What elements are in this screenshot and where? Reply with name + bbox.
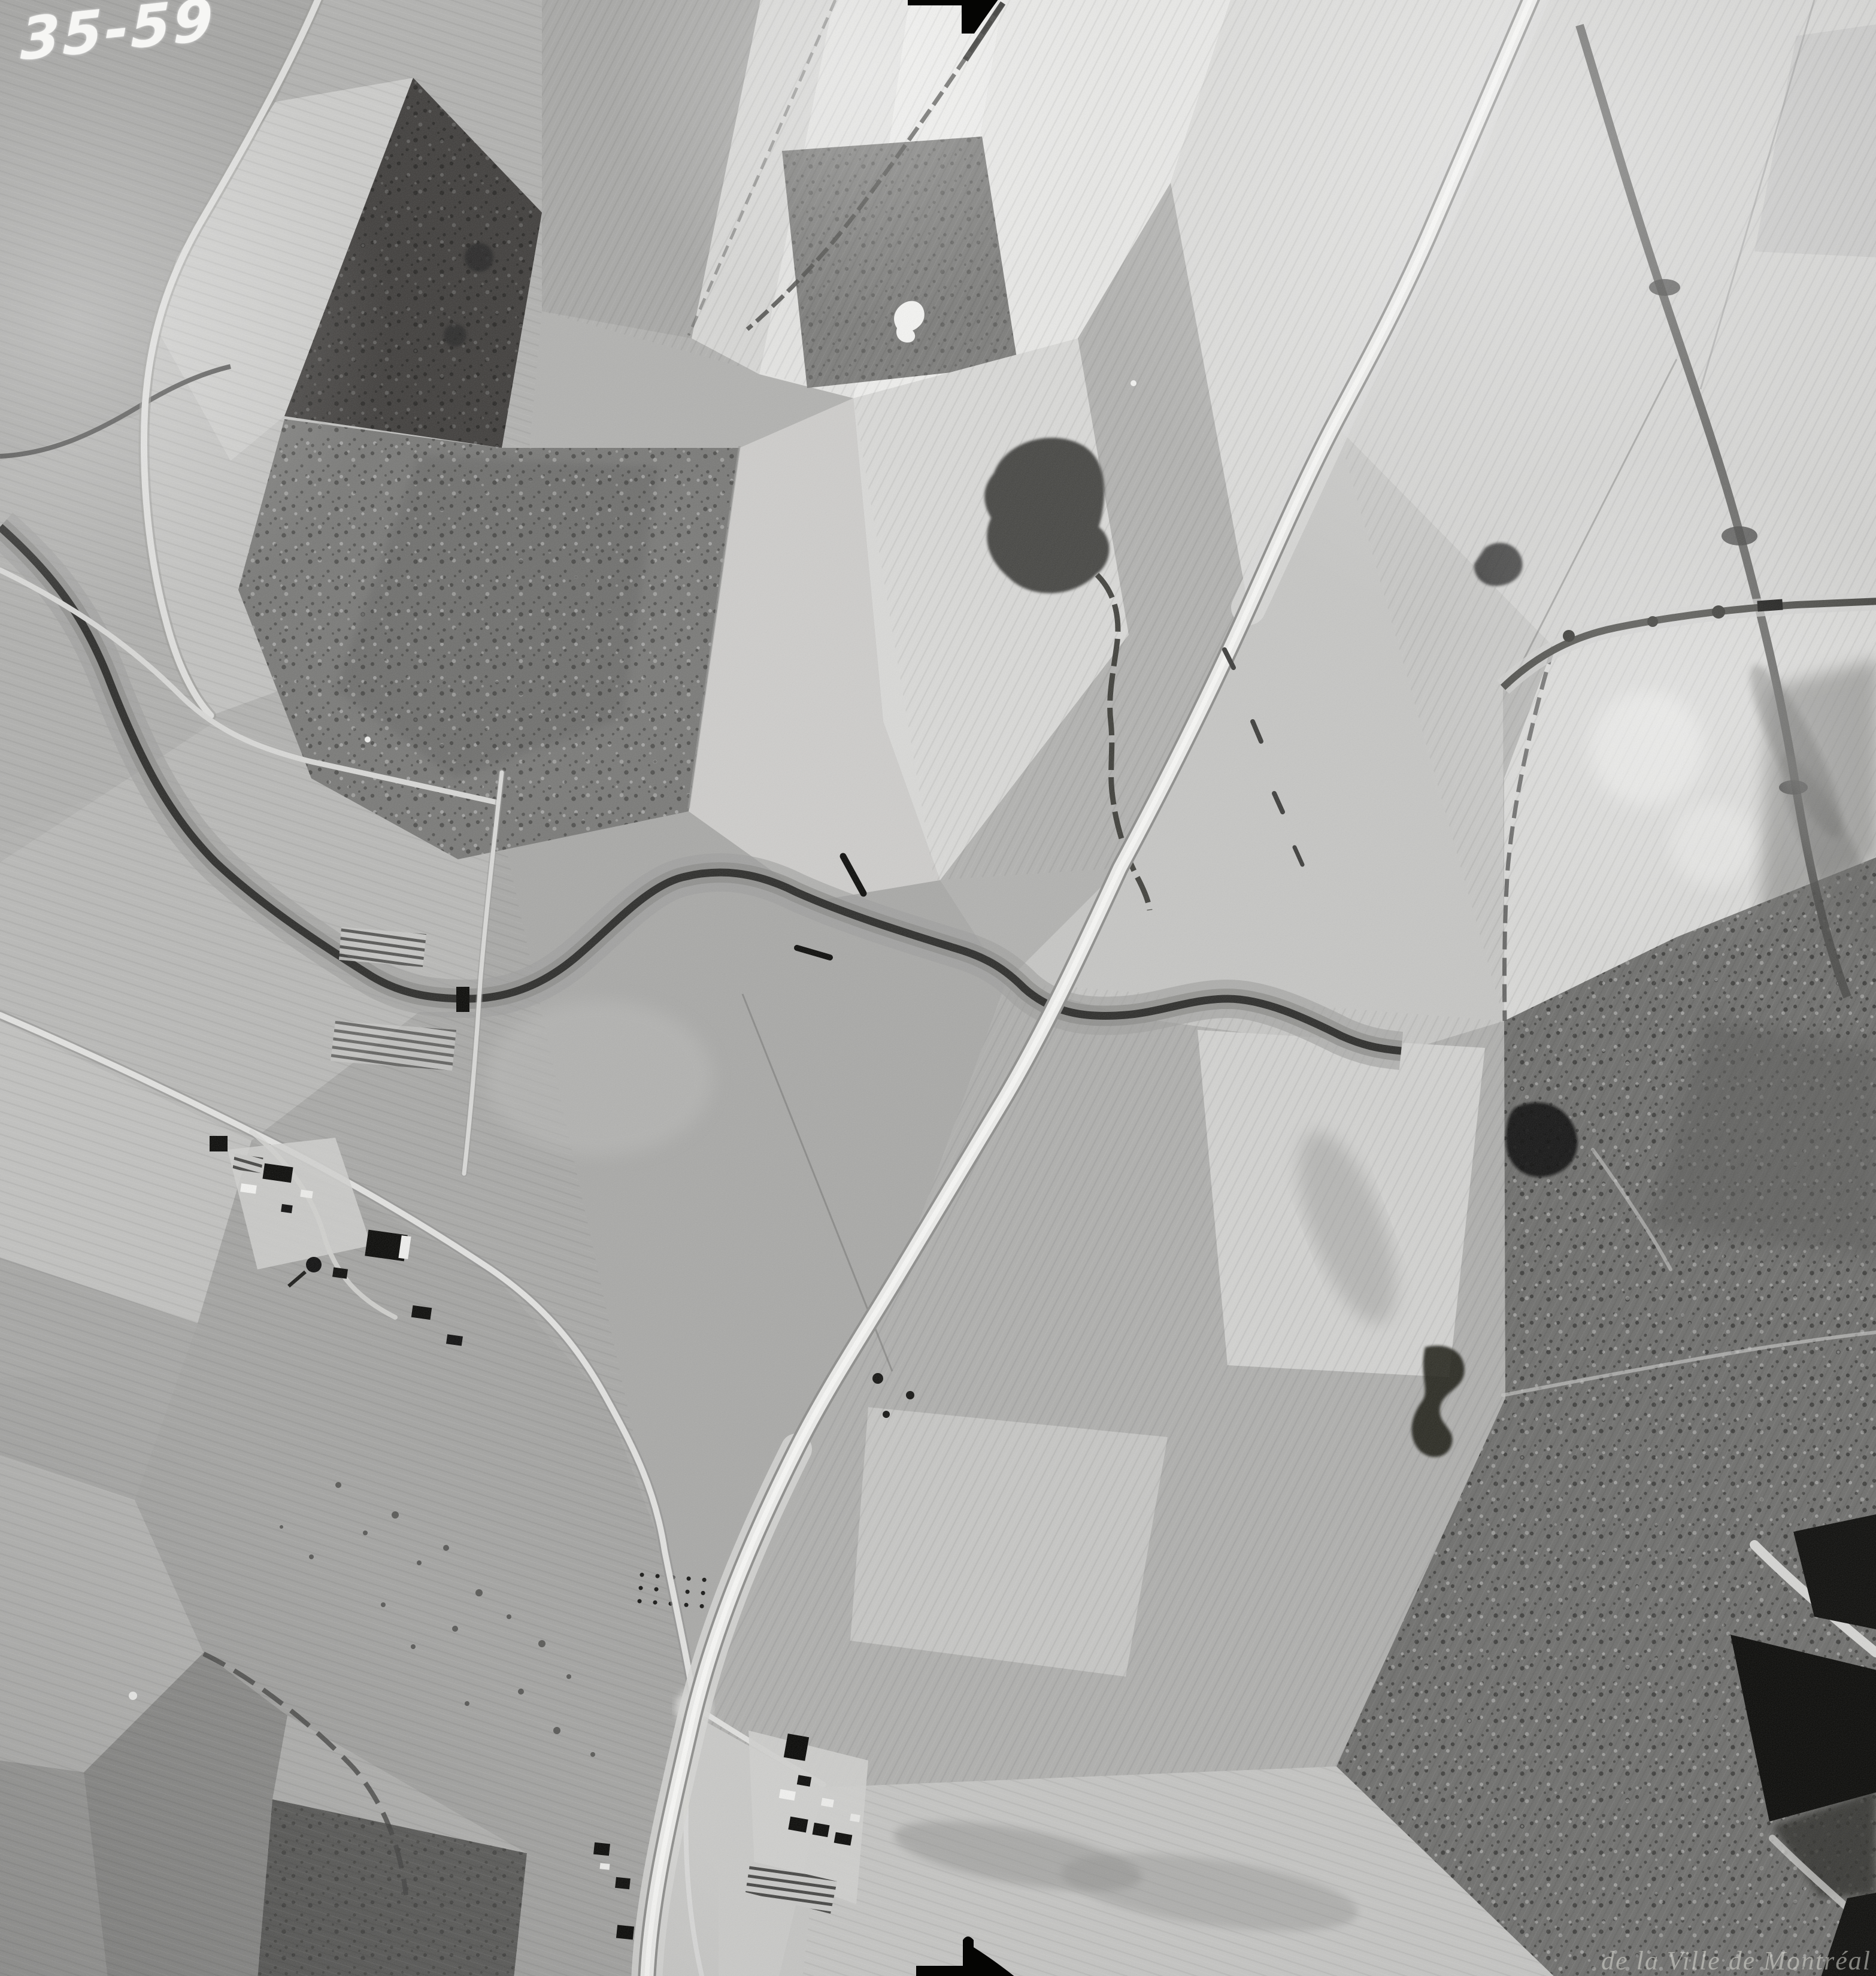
aerial-photo-canvas <box>0 0 1876 1976</box>
film-grain-overlay <box>0 0 1876 1976</box>
photo-artifacts <box>0 0 1876 1976</box>
aerial-photo: 35-59 de la Ville de Montréal <box>0 0 1876 1976</box>
archive-watermark: de la Ville de Montréal <box>1601 1945 1871 1976</box>
